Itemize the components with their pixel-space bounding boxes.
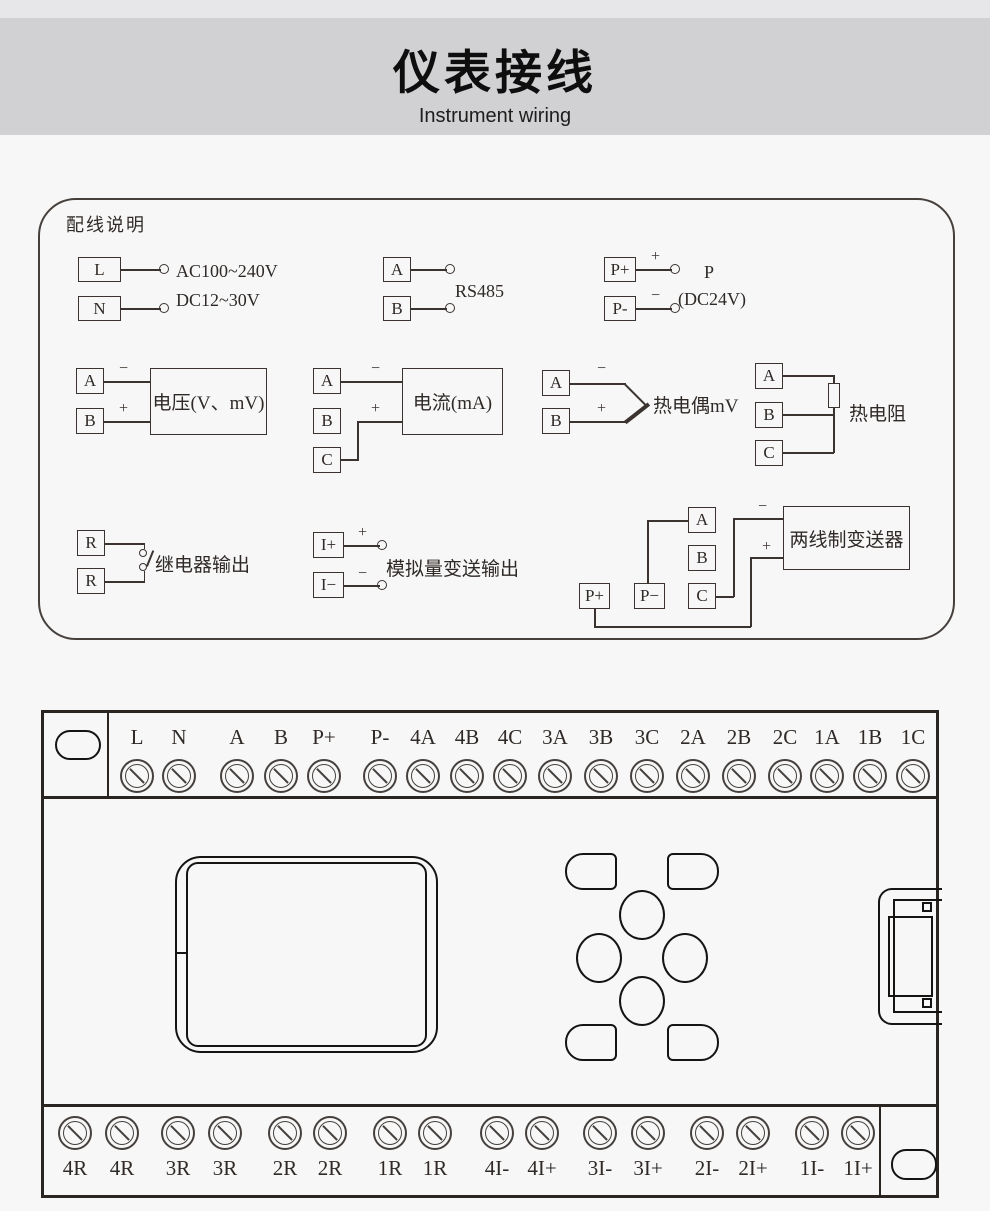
wire <box>636 308 672 310</box>
terminal-label-N: N <box>149 725 209 750</box>
current-input-box: 电流(mA) <box>402 368 503 435</box>
screw-terminal-icon <box>676 759 710 793</box>
wire <box>783 375 834 377</box>
screw-terminal-icon <box>363 759 397 793</box>
polarity-minus: − <box>651 287 660 305</box>
screw-terminal-icon <box>631 1116 665 1150</box>
wire <box>411 308 447 310</box>
wiring-notes-title: 配线说明 <box>66 211 146 237</box>
mounting-slot-icon <box>891 1149 937 1180</box>
polarity-plus: + <box>762 538 771 556</box>
wire <box>647 520 649 583</box>
terminal-label-2I+: 2I+ <box>723 1156 783 1181</box>
wire <box>144 571 146 581</box>
wire <box>104 421 150 423</box>
thermocouple-label: 热电偶mV <box>653 391 739 418</box>
wire <box>344 545 380 547</box>
screw-terminal-icon <box>268 1116 302 1150</box>
terminal-label-3I+: 3I+ <box>618 1156 678 1181</box>
terminal-label-1R: 1R <box>405 1156 465 1181</box>
wire <box>121 308 161 310</box>
power-range-dc: DC12~30V <box>176 290 260 311</box>
aux-power-name: P <box>704 262 714 283</box>
terminal-box-B: B <box>688 545 716 571</box>
terminal-box-A: A <box>688 507 716 533</box>
terminal-box-P-plus: P+ <box>604 257 636 282</box>
polarity-plus: + <box>651 248 660 266</box>
relay-output-label: 继电器输出 <box>155 550 250 577</box>
wire <box>783 414 834 416</box>
terminal-label-2R: 2R <box>300 1156 360 1181</box>
wire <box>750 557 752 627</box>
rs485-label: RS485 <box>455 281 504 302</box>
screw-terminal-icon <box>690 1116 724 1150</box>
wire <box>733 518 735 597</box>
wire <box>733 518 783 520</box>
wire <box>411 269 447 271</box>
screw-terminal-icon <box>313 1116 347 1150</box>
divider <box>879 1107 881 1196</box>
terminal-box-R1: R <box>77 530 105 556</box>
wire <box>570 421 626 423</box>
mounting-slot-icon <box>55 730 101 760</box>
wire <box>594 626 751 628</box>
button-top-right <box>667 853 719 890</box>
open-terminal-icon <box>377 580 387 590</box>
polarity-plus: + <box>358 524 367 542</box>
screw-terminal-icon <box>161 1116 195 1150</box>
terminal-box-A: A <box>755 363 783 389</box>
terminal-label-P+: P+ <box>294 725 354 750</box>
wire <box>570 383 626 385</box>
polarity-minus: − <box>358 565 367 583</box>
open-terminal-icon <box>670 264 680 274</box>
screw-terminal-icon <box>406 759 440 793</box>
header-top-band <box>0 0 990 18</box>
wire <box>344 585 380 587</box>
terminal-label-1I+: 1I+ <box>828 1156 888 1181</box>
wire <box>594 609 596 627</box>
power-range-ac: AC100~240V <box>176 261 278 282</box>
terminal-label-3R: 3R <box>195 1156 255 1181</box>
screw-terminal-icon <box>418 1116 452 1150</box>
terminal-box-N: N <box>78 296 121 321</box>
screw-terminal-icon <box>120 759 154 793</box>
polarity-plus: + <box>597 400 606 418</box>
wire <box>716 596 734 598</box>
terminal-box-B: B <box>383 296 411 321</box>
terminal-box-B: B <box>755 402 783 428</box>
terminal-box-C: C <box>688 583 716 609</box>
wire <box>783 452 834 454</box>
screw-terminal-icon <box>480 1116 514 1150</box>
terminal-box-A: A <box>383 257 411 282</box>
page: 仪表接线 Instrument wiring 配线说明 L N AC100~24… <box>0 0 990 1211</box>
screw-terminal-icon <box>584 759 618 793</box>
terminal-box-B: B <box>313 408 341 434</box>
terminal-box-B: B <box>76 408 104 434</box>
wire <box>341 381 402 383</box>
open-terminal-icon <box>159 264 169 274</box>
screw-terminal-icon <box>810 759 844 793</box>
resistor-icon <box>828 383 840 408</box>
connector-card <box>888 916 933 997</box>
screw-terminal-icon <box>736 1116 770 1150</box>
screw-terminal-icon <box>58 1116 92 1150</box>
wire <box>750 557 783 559</box>
terminal-box-A: A <box>313 368 341 394</box>
screw-terminal-icon <box>373 1116 407 1150</box>
screw-terminal-icon <box>208 1116 242 1150</box>
button-left <box>576 933 622 983</box>
connector-tab <box>922 998 932 1008</box>
polarity-minus: − <box>597 360 606 378</box>
screw-terminal-icon <box>768 759 802 793</box>
aux-power-voltage: (DC24V) <box>678 289 746 310</box>
terminal-box-P-minus: P− <box>634 583 665 609</box>
analog-output-label: 模拟量变送输出 <box>386 554 519 581</box>
divider <box>41 1104 939 1107</box>
screw-terminal-icon <box>853 759 887 793</box>
terminal-box-R2: R <box>77 568 105 594</box>
wire <box>636 269 672 271</box>
screw-terminal-icon <box>630 759 664 793</box>
switch-contact-icon <box>139 549 147 557</box>
voltage-input-box: 电压(V、mV) <box>150 368 267 435</box>
terminal-box-L: L <box>78 257 121 282</box>
terminal-label-4I+: 4I+ <box>512 1156 572 1181</box>
screw-terminal-icon <box>795 1116 829 1150</box>
rtd-label: 热电阻 <box>849 399 906 426</box>
page-subtitle: Instrument wiring <box>0 105 990 128</box>
screw-terminal-icon <box>162 759 196 793</box>
bezel-notch <box>175 952 186 954</box>
button-right <box>662 933 708 983</box>
screw-terminal-icon <box>493 759 527 793</box>
polarity-minus: − <box>371 360 380 378</box>
wire <box>121 269 161 271</box>
screw-terminal-icon <box>583 1116 617 1150</box>
terminal-box-A: A <box>542 370 570 396</box>
wire <box>357 421 359 460</box>
wire <box>357 421 402 423</box>
screw-terminal-icon <box>307 759 341 793</box>
screw-terminal-icon <box>264 759 298 793</box>
screw-terminal-icon <box>525 1116 559 1150</box>
terminal-box-A: A <box>76 368 104 394</box>
page-title: 仪表接线 <box>0 34 990 103</box>
polarity-minus: − <box>758 498 767 516</box>
screw-terminal-icon <box>220 759 254 793</box>
polarity-plus: + <box>371 400 380 418</box>
wire <box>105 581 145 583</box>
transmitter-box: 两线制变送器 <box>783 506 910 570</box>
button-up <box>619 890 665 940</box>
connector-tab <box>922 902 932 912</box>
terminal-box-I-minus: I− <box>313 572 344 598</box>
open-terminal-icon <box>159 303 169 313</box>
screw-terminal-icon <box>896 759 930 793</box>
terminal-box-C: C <box>755 440 783 466</box>
open-terminal-icon <box>377 540 387 550</box>
polarity-plus: + <box>119 400 128 418</box>
display-window <box>186 862 427 1047</box>
terminal-label-1C: 1C <box>883 725 943 750</box>
terminal-box-P-plus: P+ <box>579 583 610 609</box>
open-terminal-icon <box>445 303 455 313</box>
screw-terminal-icon <box>105 1116 139 1150</box>
screw-terminal-icon <box>538 759 572 793</box>
wire <box>647 520 688 522</box>
wire <box>105 543 145 545</box>
terminal-box-P-minus: P- <box>604 296 636 321</box>
terminal-box-C: C <box>313 447 341 473</box>
open-terminal-icon <box>445 264 455 274</box>
screw-terminal-icon <box>841 1116 875 1150</box>
button-top-left <box>565 853 617 890</box>
polarity-minus: − <box>119 360 128 378</box>
terminal-label-4R: 4R <box>92 1156 152 1181</box>
wire <box>104 381 150 383</box>
terminal-box-I-plus: I+ <box>313 532 344 558</box>
button-bottom-right <box>667 1024 719 1061</box>
screw-terminal-icon <box>722 759 756 793</box>
button-down <box>619 976 665 1026</box>
header: 仪表接线 Instrument wiring <box>0 18 990 135</box>
divider <box>41 796 939 799</box>
terminal-box-B: B <box>542 408 570 434</box>
screw-terminal-icon <box>450 759 484 793</box>
button-bottom-left <box>565 1024 617 1061</box>
